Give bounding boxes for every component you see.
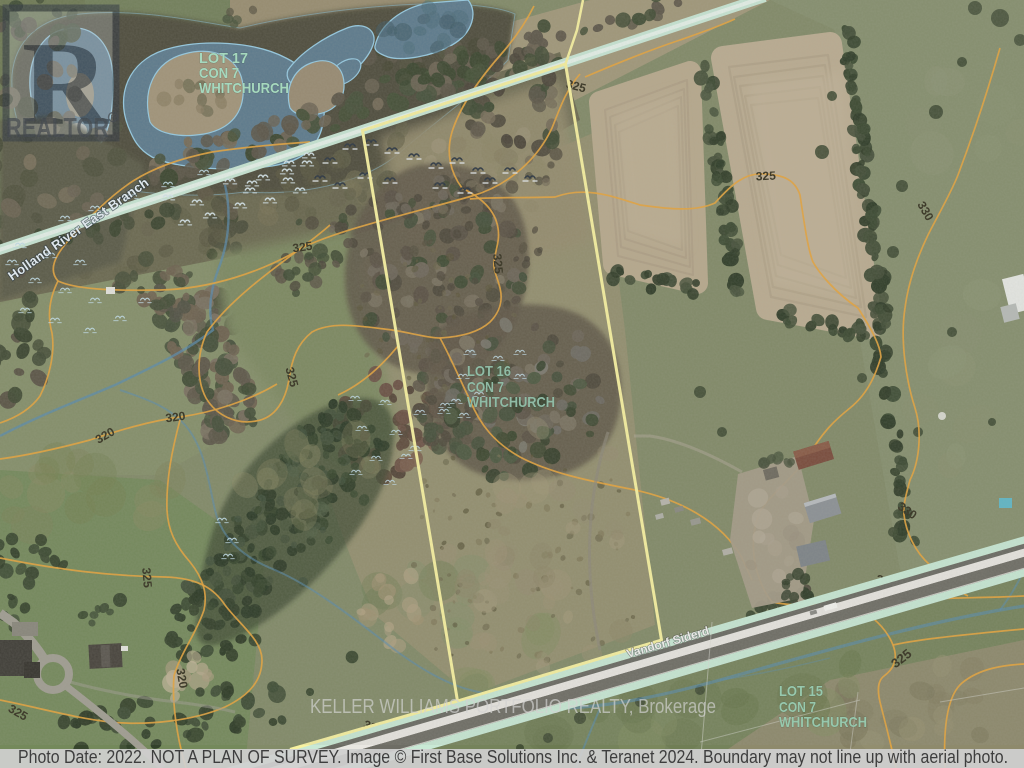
svg-text:Photo Date: 2022. NOT A PLAN O: Photo Date: 2022. NOT A PLAN OF SURVEY. … — [18, 747, 1008, 767]
